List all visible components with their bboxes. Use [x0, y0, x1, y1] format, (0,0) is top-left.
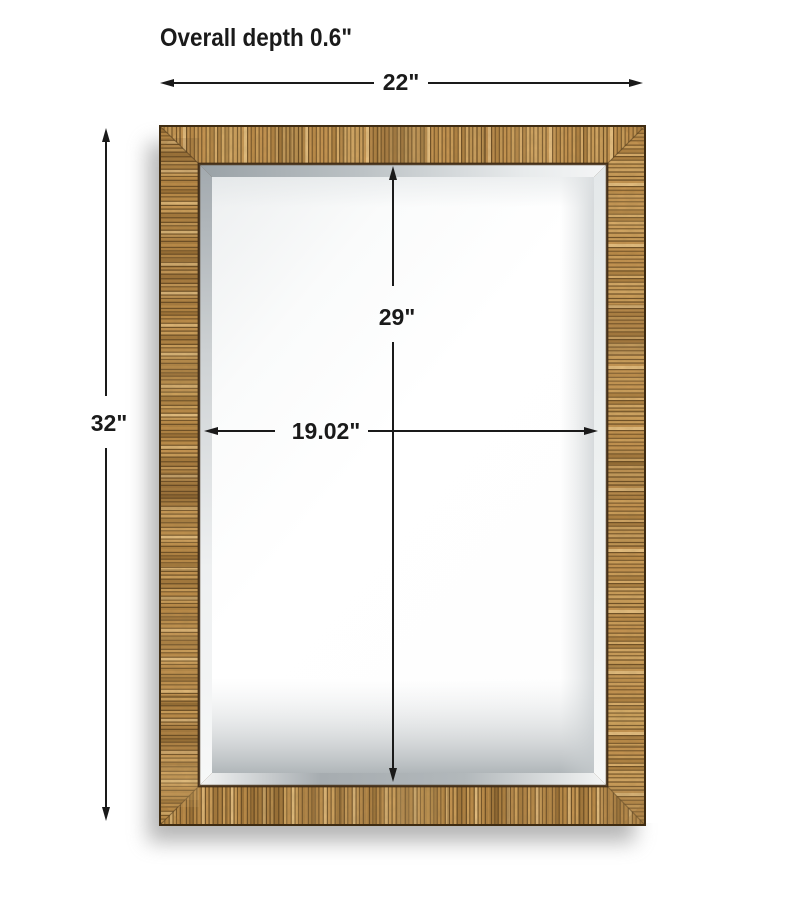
svg-text:19.02": 19.02"	[292, 418, 360, 444]
svg-text:32": 32"	[91, 410, 128, 436]
svg-text:Overall depth 0.6": Overall depth 0.6"	[160, 24, 352, 52]
svg-text:22": 22"	[383, 69, 420, 95]
svg-text:29": 29"	[379, 304, 416, 330]
